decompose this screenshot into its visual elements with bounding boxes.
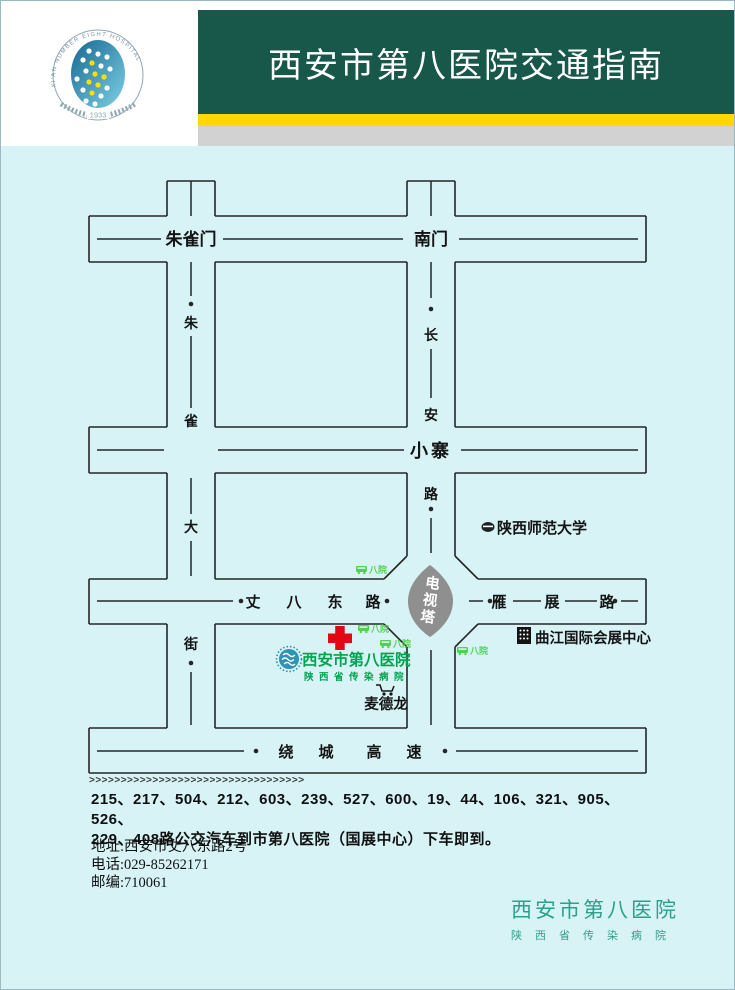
- svg-text:电: 电: [424, 573, 441, 593]
- svg-text:路: 路: [599, 593, 615, 611]
- hospital-mini-logo: [277, 647, 302, 672]
- svg-text:长: 长: [424, 327, 439, 343]
- road-label-zhangba-east: 丈 八 东 路: [245, 593, 381, 611]
- svg-text:速: 速: [406, 743, 421, 761]
- road-label-yanzhan: 雁 展 路: [491, 593, 615, 611]
- svg-text:八院: 八院: [392, 638, 411, 649]
- road-label-xiaozhai: 小寨: [410, 440, 452, 461]
- red-cross-icon: [328, 626, 352, 650]
- cart-icon: [376, 685, 394, 691]
- page-title: 西安市第八医院交通指南: [268, 38, 664, 87]
- org-name: 西安市第八医院: [511, 894, 685, 924]
- svg-text:街: 街: [183, 636, 198, 652]
- road-label-zhuquemen: 朱雀门: [166, 229, 217, 249]
- contact-info: 地址:西安市丈八东路2号 电话:029-85262171 邮编:710061: [91, 838, 247, 892]
- expo-center-landmark: 曲江国际会展中心: [517, 627, 651, 647]
- hospital-landmark: 西安市第八医院 陕西省传染病院: [277, 626, 412, 683]
- bus-stop-marker: 八院: [457, 645, 488, 656]
- svg-text:雁: 雁: [491, 594, 506, 611]
- svg-text:朱: 朱: [184, 315, 199, 331]
- hospital-logo: XI'AN NUMBER EIGHT HOSPITAL 1933: [1, 1, 198, 146]
- svg-text:东: 东: [327, 593, 342, 611]
- yellow-stripe: [198, 114, 734, 126]
- school-icon-band: [483, 526, 493, 528]
- building-icon-windows: [520, 630, 529, 640]
- traffic-guide-poster: XI'AN NUMBER EIGHT HOSPITAL 1933: [0, 0, 735, 990]
- svg-text:城: 城: [318, 743, 333, 761]
- road-outlines: [89, 181, 646, 773]
- svg-text:安: 安: [424, 407, 438, 423]
- svg-text:八院: 八院: [469, 645, 488, 656]
- svg-text:视: 视: [422, 590, 439, 610]
- metro-landmark: 麦德龙: [364, 685, 408, 713]
- bus-stop-marker: 八院: [356, 564, 387, 575]
- svg-text:路: 路: [424, 486, 439, 502]
- postal-line: 邮编:710061: [91, 874, 247, 892]
- hospital-logo-icon: XI'AN NUMBER EIGHT HOSPITAL 1933: [1, 1, 198, 146]
- gray-stripe: [198, 126, 734, 146]
- title-banner: 西安市第八医院交通指南: [198, 10, 734, 114]
- svg-text:丈: 丈: [245, 594, 260, 611]
- svg-text:展: 展: [544, 594, 559, 611]
- address-line: 地址:西安市丈八东路2号: [91, 838, 247, 856]
- org-subtitle: 陕西省传染病院: [511, 927, 685, 943]
- university-landmark: 陕西师范大学: [482, 519, 588, 537]
- svg-text:八院: 八院: [368, 564, 387, 575]
- svg-text:雀: 雀: [183, 413, 198, 429]
- svg-text:路: 路: [365, 593, 381, 611]
- tv-tower: 电 视 塔: [408, 565, 453, 637]
- svg-text:大: 大: [184, 519, 198, 535]
- hospital-map-label: 西安市第八医院: [302, 650, 411, 669]
- expo-center-label: 曲江国际会展中心: [535, 629, 651, 647]
- bus-route-line1: 215、217、504、212、603、239、527、600、19、44、10…: [91, 790, 651, 830]
- org-signature: 西安市第八医院 陕西省传染病院: [511, 894, 685, 943]
- logo-year: 1933: [90, 111, 107, 120]
- road-label-ring-expressway: 绕 城 高 速: [278, 743, 421, 761]
- phone-line: 电话:029-85262171: [91, 856, 247, 874]
- svg-text:八: 八: [285, 594, 302, 611]
- metro-label: 麦德龙: [364, 695, 408, 713]
- svg-text:八院: 八院: [370, 623, 389, 634]
- bus-stop-marker: 八院: [380, 638, 411, 649]
- arrow-separator: >>>>>>>>>>>>>>>>>>>>>>>>>>>>>>>>>>: [89, 775, 305, 786]
- svg-text:绕: 绕: [278, 743, 293, 761]
- svg-text:塔: 塔: [419, 607, 436, 627]
- road-label-nanmen: 南门: [414, 229, 448, 249]
- header: XI'AN NUMBER EIGHT HOSPITAL 1933: [1, 1, 735, 146]
- svg-text:高: 高: [366, 743, 381, 761]
- hospital-map-sublabel: 陕西省传染病院: [304, 671, 409, 683]
- university-label: 陕西师范大学: [497, 519, 587, 537]
